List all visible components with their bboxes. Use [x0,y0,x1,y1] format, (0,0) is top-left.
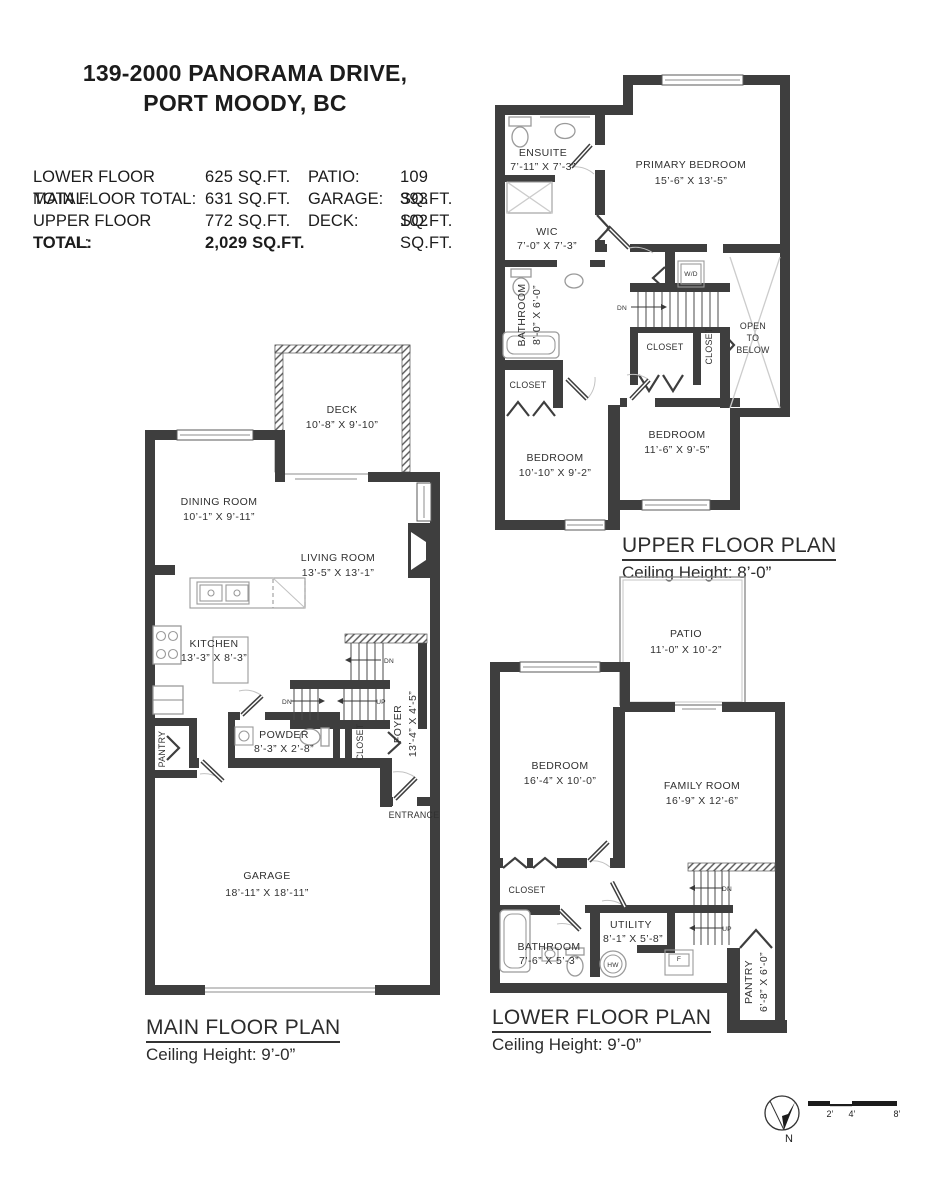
area-summary-table: LOWER FLOOR TOTAL: 625 SQ.FT. PATIO: 109… [33,166,463,254]
label-furnace: F [677,956,681,963]
label-open-to-below: TO [747,333,760,343]
room-dims-foyer: 13’-4” X 4’-5” [407,691,419,757]
room-label-bedroom: BEDROOM [531,760,588,772]
room-label-powder: POWDER [259,729,309,741]
room-label-pantry: PANTRY [743,960,755,1004]
total-label: TOTAL: [33,232,205,254]
patio-border [620,577,745,705]
room-dims-bathroom: 7’-6” X 5’-3” [519,955,579,967]
total-value: 2,029 SQ.FT. [205,232,308,254]
fridge-icon [153,686,183,714]
page-title: 139-2000 PANORAMA DRIVE, PORT MOODY, BC [40,58,450,118]
room-dims-powder: 8’-3” X 2’-8” [254,743,314,755]
label-up: UP [722,926,732,933]
room-label-bedroom-1: BEDROOM [526,452,583,464]
room-dims-wic: 7’-0” X 7’-3” [517,240,577,252]
table-row: UPPER FLOOR TOTAL: 772 SQ.FT. DECK: 102 … [33,210,463,232]
table-row: LOWER FLOOR TOTAL: 625 SQ.FT. PATIO: 109… [33,166,463,188]
room-dims-utility: 8’-1” X 5’-8” [603,933,663,945]
room-label-primary-bedroom: PRIMARY BEDROOM [636,159,747,171]
room-label-dining: DINING ROOM [181,496,258,508]
sink-icon [565,274,583,288]
main-plan-title: MAIN FLOOR PLAN Ceiling Height: 9’-0” [146,1016,340,1065]
room-dims-patio: 11’-0” X 10’-2” [650,644,722,656]
room-dims-bedroom: 16’-4” X 10’-0” [524,775,597,787]
floorplan-page: 139-2000 PANORAMA DRIVE, PORT MOODY, BC … [0,0,927,1200]
scale-label-2ft: 2’ [826,1109,833,1119]
room-dims-deck: 10’-8” X 9’-10” [306,419,379,431]
powder-sink-icon [235,727,253,745]
label-open-to-below: BELOW [736,345,770,355]
label-open-to-below: OPEN [740,321,766,331]
label-pantry: PANTRY [157,731,167,768]
table-row-total: TOTAL: 2,029 SQ.FT. [33,232,463,254]
north-label: N [785,1133,793,1145]
label-closet: CLOSET [510,380,547,390]
room-label-wic: WIC [536,226,558,238]
room-label-bedroom-2: BEDROOM [648,429,705,441]
room-label-living: LIVING ROOM [301,552,375,564]
shower-icon [507,182,552,213]
room-dims-garage: 18’-11” X 18’-11” [225,887,309,899]
address-line-2: PORT MOODY, BC [40,88,450,118]
room-label-deck: DECK [327,404,358,416]
room-label-garage: GARAGE [243,870,290,882]
label-dn: DN [617,305,627,312]
room-label-family-room: FAMILY ROOM [664,780,740,792]
plan-title-text: MAIN FLOOR PLAN [146,1016,340,1043]
room-label-utility: UTILITY [610,919,652,931]
scale-label-8ft: 8’ [893,1109,900,1119]
room-dims-family-room: 16’-9” X 12’-6” [666,795,739,807]
room-dims-pantry: 6’-8” X 6’-0” [758,952,770,1012]
plan-title-text: UPPER FLOOR PLAN [622,534,836,561]
label-hot-water: HW [607,962,619,969]
room-dims-dining: 10’-1” X 9’-11” [183,511,255,523]
label-entrance: ENTRANCE [389,810,440,820]
room-label-patio: PATIO [670,628,702,640]
toilet-icon [509,117,531,147]
room-label-kitchen: KITCHEN [190,638,239,650]
room-dims-ensuite: 7’-11” X 7’-3” [510,161,576,173]
room-label-foyer: FOYER [392,705,404,743]
main-floor-plan: DECK 10’-8” X 9’-10” DINING ROOM 10’-1” … [145,340,440,1010]
label-closet: CLOSET [704,327,714,364]
label-washer-dryer: W/D [684,271,697,278]
upper-floor-plan: PRIMARY BEDROOM 15’-6” X 13’-5” ENSUITE … [495,75,790,530]
lower-plan-title: LOWER FLOOR PLAN Ceiling Height: 9’-0” [492,1006,711,1055]
room-label-ensuite: ENSUITE [519,147,567,159]
label-dn: DN [384,658,394,665]
sink-icon [540,117,590,139]
sliding-door [285,474,368,479]
room-label-bathroom: BATHROOM [517,941,580,953]
plan-title-text: LOWER FLOOR PLAN [492,1006,711,1033]
scale-bar: 2’ 4’ 8’ [800,1095,910,1125]
room-label-bathroom: BATHROOM [516,283,528,346]
room-dims-primary-bedroom: 15’-6” X 13’-5” [655,175,728,187]
label-dn: DN [282,699,292,706]
label-closet: CLOSET [355,723,365,760]
label-dn: DN [722,886,732,893]
plan-ceiling-text: Ceiling Height: 9’-0” [146,1043,340,1065]
table-row: MAIN FLOOR TOTAL: 631 SQ.FT. GARAGE: 393… [33,188,463,210]
room-dims-kitchen: 13’-3” X 8’-3” [181,652,247,664]
stove-icon [153,626,181,664]
address-line-1: 139-2000 PANORAMA DRIVE, [40,58,450,88]
room-dims-living: 13’-5” X 13’-1” [302,567,375,579]
garage-door [205,988,375,992]
stairs-icon [631,292,718,327]
room-dims-bedroom-1: 10’-10” X 9’-2” [519,467,592,479]
kitchen-sink-icon [190,578,305,608]
room-dims-bathroom: 8’-0” X 6’-0” [531,285,543,345]
label-closet: CLOSET [509,885,546,895]
room-dims-bedroom-2: 11’-6” X 9’-5” [644,444,710,456]
windows [520,662,600,672]
lower-floor-plan: PATIO 11’-0” X 10’-2” BEDROOM 16’-4” X 1… [490,570,790,1035]
fireplace-icon [408,523,430,578]
label-up: UP [376,699,386,706]
plan-ceiling-text: Ceiling Height: 9’-0” [492,1033,711,1055]
corner-cabinet-icon [273,578,305,608]
scale-label-4ft: 4’ [848,1109,855,1119]
label-closet: CLOSET [647,342,684,352]
